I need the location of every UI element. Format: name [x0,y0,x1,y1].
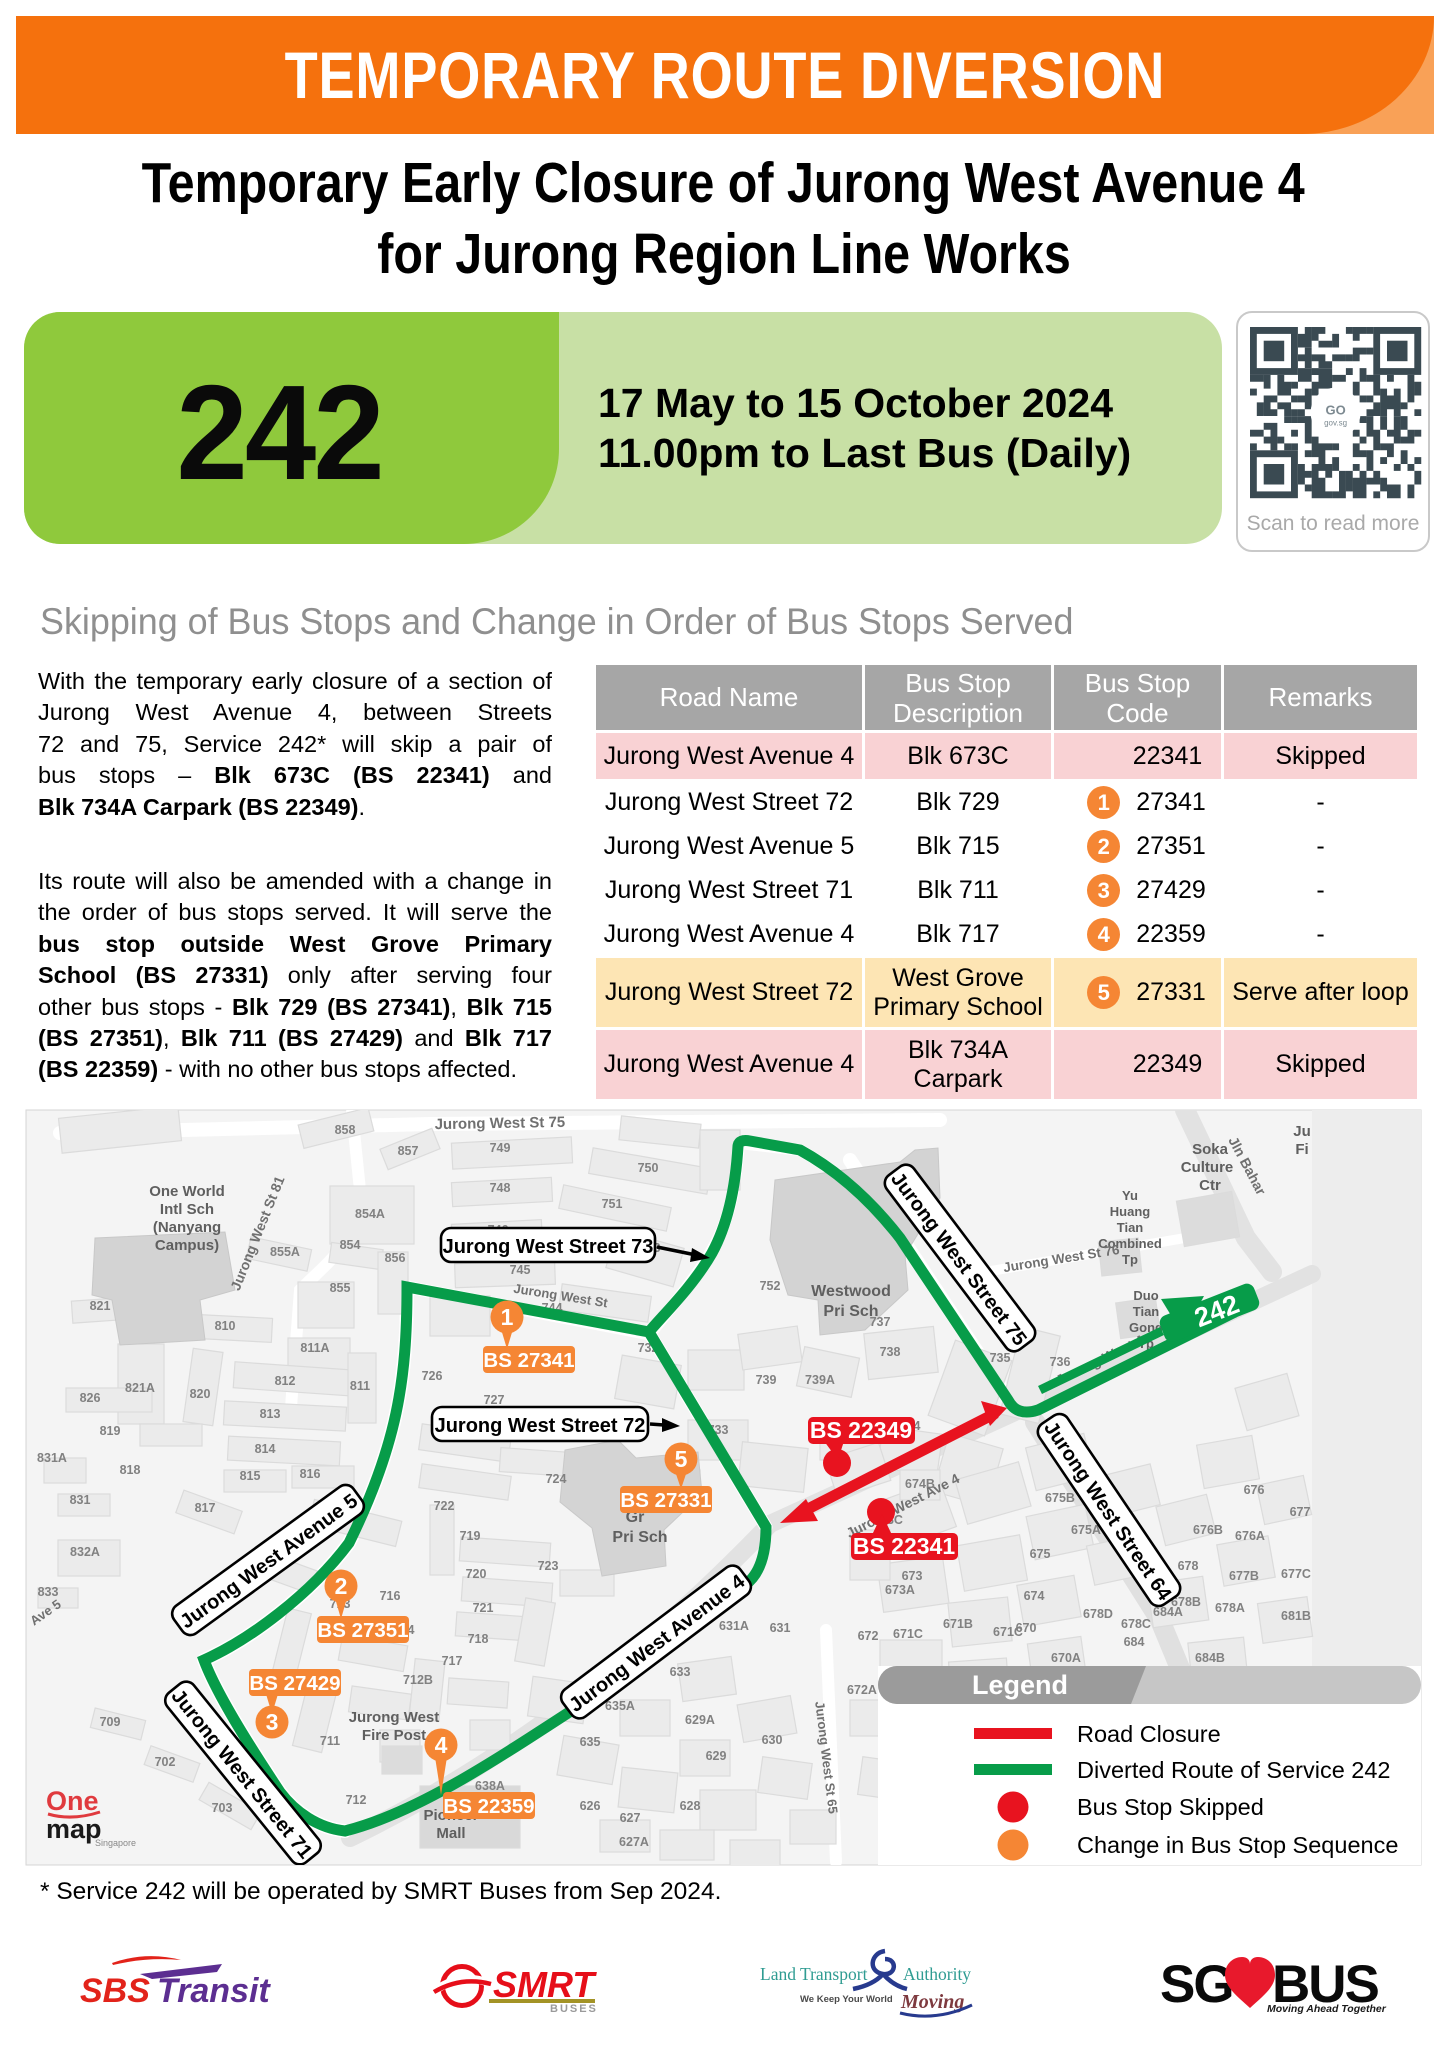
svg-text:SBS: SBS [80,1972,150,2010]
svg-text:SG: SG [1160,1955,1233,2014]
svg-text:Land Transport: Land Transport [760,1964,868,1984]
svg-text:Moving Ahead Together: Moving Ahead Together [1267,2003,1387,2015]
svg-text:Moving: Moving [900,1991,964,2013]
svg-text:BUSES: BUSES [550,2003,598,2015]
svg-text:SMRT: SMRT [493,1964,597,2005]
svg-text:We Keep Your World: We Keep Your World [800,1994,893,2005]
svg-text:Authority: Authority [903,1964,971,1984]
svg-text:Transit: Transit [157,1972,271,2010]
